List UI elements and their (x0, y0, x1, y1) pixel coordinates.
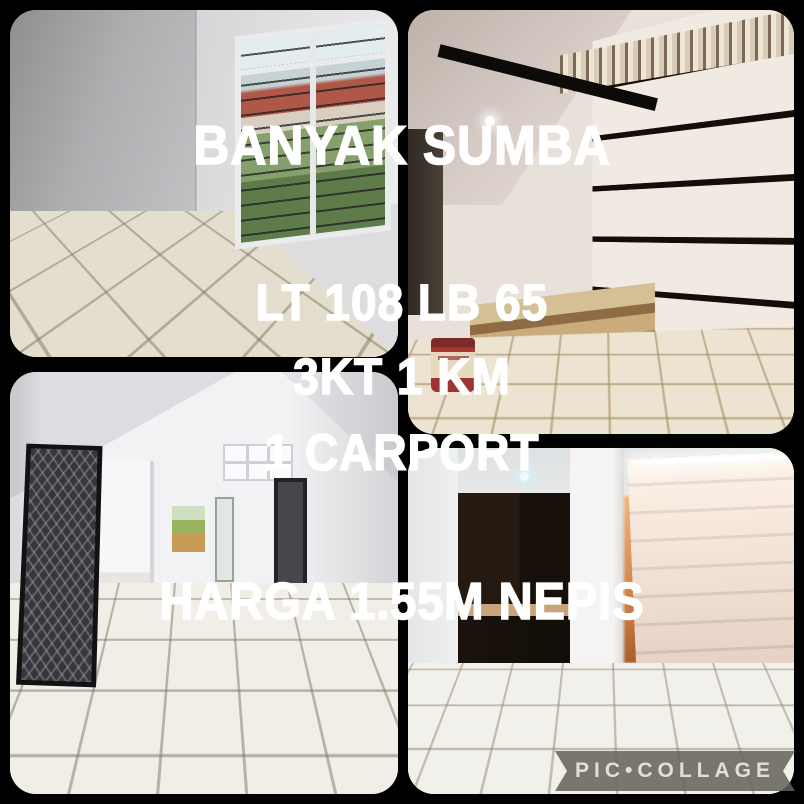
collage-canvas: BANYAK SUMBA LT 108 LB 65 3KT 1 KM 1 CAR… (0, 0, 804, 804)
narrow-door (212, 494, 237, 584)
far-window-greenery (169, 503, 208, 555)
grooved-wall-surface (627, 451, 794, 680)
grooved-wall (627, 451, 794, 680)
overlay-land-building: LT 108 LB 65 (16, 274, 788, 332)
overlay-title: BANYAK SUMBA (16, 114, 788, 178)
overlay-bed-bath: 3KT 1 KM (16, 348, 788, 406)
overlay-price: HARGA 1.55M NEPIS (16, 572, 788, 631)
pic-collage-watermark-ribbon: PIC•COLLAGE (555, 751, 795, 791)
pic-collage-watermark-text: PIC•COLLAGE (575, 759, 775, 783)
overlay-carport: 1 CARPORT (16, 424, 788, 482)
